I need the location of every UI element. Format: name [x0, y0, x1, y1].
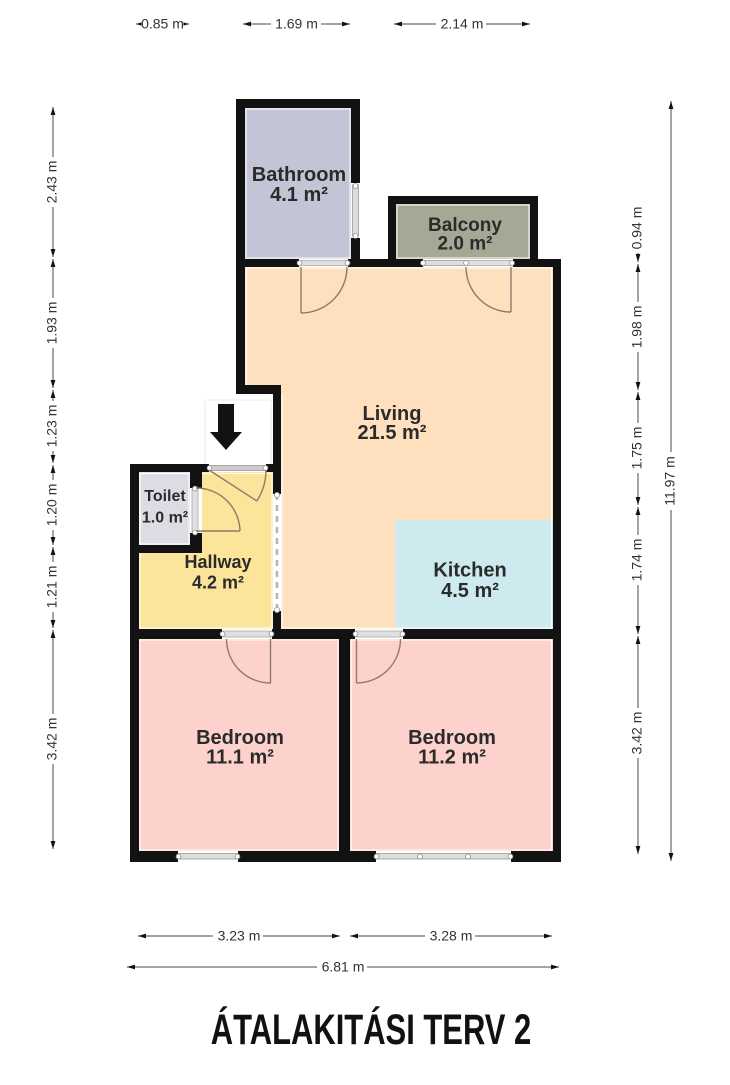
- svg-text:1.98 m: 1.98 m: [629, 306, 645, 349]
- svg-text:4.1 m²: 4.1 m²: [270, 184, 328, 206]
- svg-text:0.85 m: 0.85 m: [141, 16, 184, 32]
- svg-text:11.97 m: 11.97 m: [662, 456, 678, 506]
- svg-text:11.2 m²: 11.2 m²: [418, 747, 486, 769]
- svg-text:1.75 m: 1.75 m: [629, 427, 645, 470]
- svg-text:3.23 m: 3.23 m: [218, 928, 261, 944]
- svg-text:0.94 m: 0.94 m: [629, 207, 645, 250]
- svg-text:21.5 m²: 21.5 m²: [358, 422, 427, 444]
- svg-text:Hallway: Hallway: [184, 552, 251, 572]
- svg-text:2.43 m: 2.43 m: [44, 161, 60, 204]
- svg-text:1.69 m: 1.69 m: [275, 16, 318, 32]
- svg-text:11.1 m²: 11.1 m²: [206, 747, 274, 769]
- svg-text:Kitchen: Kitchen: [433, 560, 506, 582]
- svg-text:ÁTALAKITÁSI TERV 2: ÁTALAKITÁSI TERV 2: [211, 1005, 531, 1053]
- svg-text:4.5 m²: 4.5 m²: [441, 580, 499, 602]
- svg-text:1.0 m²: 1.0 m²: [142, 510, 188, 527]
- svg-text:Toilet: Toilet: [144, 488, 186, 505]
- svg-text:Bathroom: Bathroom: [252, 164, 346, 186]
- svg-text:1.23 m: 1.23 m: [44, 405, 60, 448]
- svg-text:1.93 m: 1.93 m: [44, 302, 60, 345]
- svg-text:3.28 m: 3.28 m: [430, 928, 473, 944]
- svg-text:6.81 m: 6.81 m: [322, 959, 365, 975]
- svg-text:3.42 m: 3.42 m: [44, 718, 60, 761]
- svg-text:3.42 m: 3.42 m: [629, 712, 645, 755]
- svg-text:4.2 m²: 4.2 m²: [192, 573, 244, 593]
- svg-text:1.74 m: 1.74 m: [629, 539, 645, 582]
- svg-text:2.14 m: 2.14 m: [441, 16, 484, 32]
- svg-text:1.20 m: 1.20 m: [44, 484, 60, 527]
- svg-text:2.0 m²: 2.0 m²: [438, 234, 493, 255]
- svg-text:1.21 m: 1.21 m: [44, 566, 60, 609]
